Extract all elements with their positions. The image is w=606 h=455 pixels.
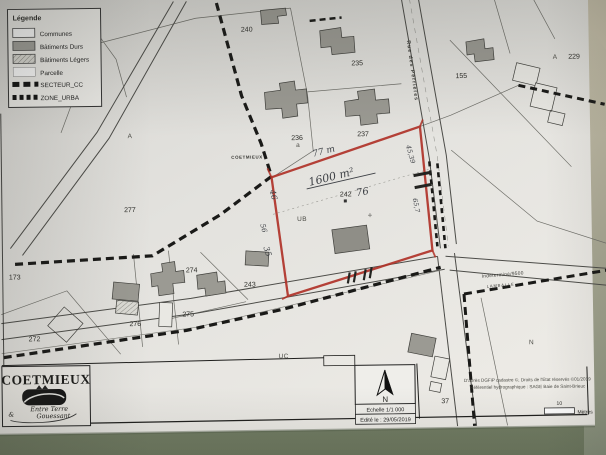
photo-of-cadastral-map: 240 235 236 237 277 173 274 243 275 276 … xyxy=(0,0,606,455)
photo-shading-horizontal xyxy=(0,0,606,455)
cadastral-map-photo: 240 235 236 237 277 173 274 243 275 276 … xyxy=(0,0,606,455)
